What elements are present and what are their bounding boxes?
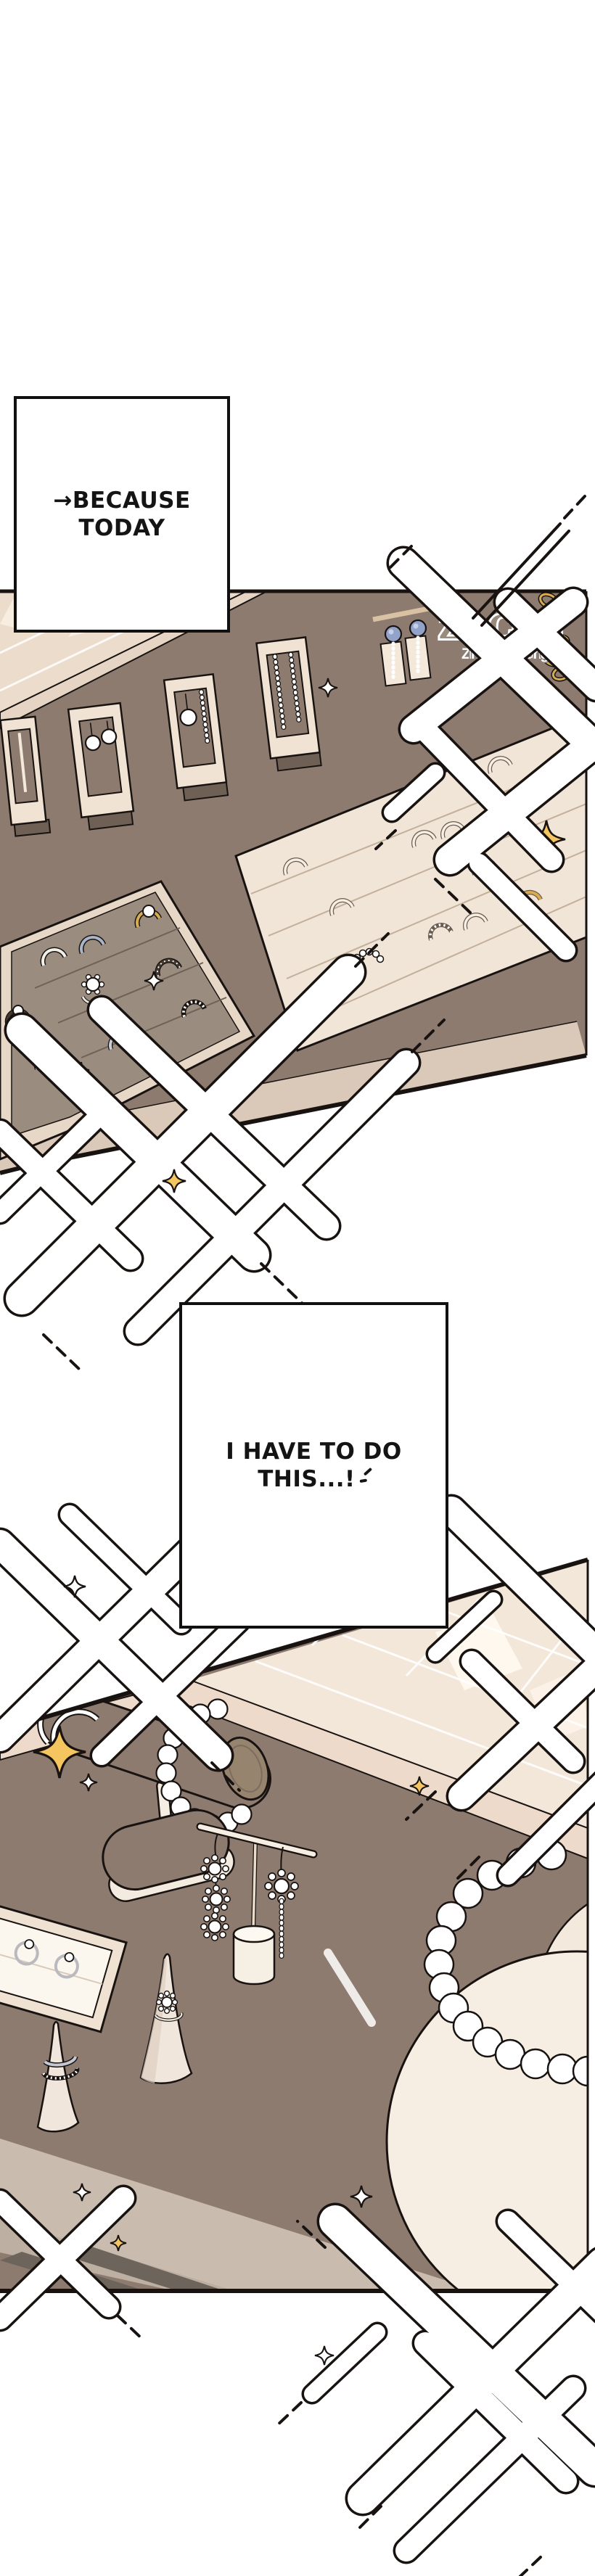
speech-bubble-because-today: →BECAUSE TODAY — [14, 396, 230, 633]
emphasis-marks-icon — [357, 1469, 370, 1488]
speech-bubble-i-have-to-do-this: I HAVE TO DO THIS...! — [179, 1302, 448, 1629]
speech-text: I HAVE TO DO THIS...! — [226, 1438, 402, 1494]
speech-line: TODAY — [53, 514, 190, 542]
comic-artwork: Zin Chan ZinChangmanga — [0, 0, 595, 2576]
speech-text: →BECAUSE TODAY — [53, 487, 190, 543]
speech-line: THIS...! — [226, 1465, 402, 1493]
comic-page: Zin Chan ZinChangmanga — [0, 0, 595, 2576]
speech-line: →BECAUSE — [53, 487, 190, 514]
speech-line: I HAVE TO DO — [226, 1438, 402, 1465]
cylinder-holder — [234, 1926, 274, 1984]
